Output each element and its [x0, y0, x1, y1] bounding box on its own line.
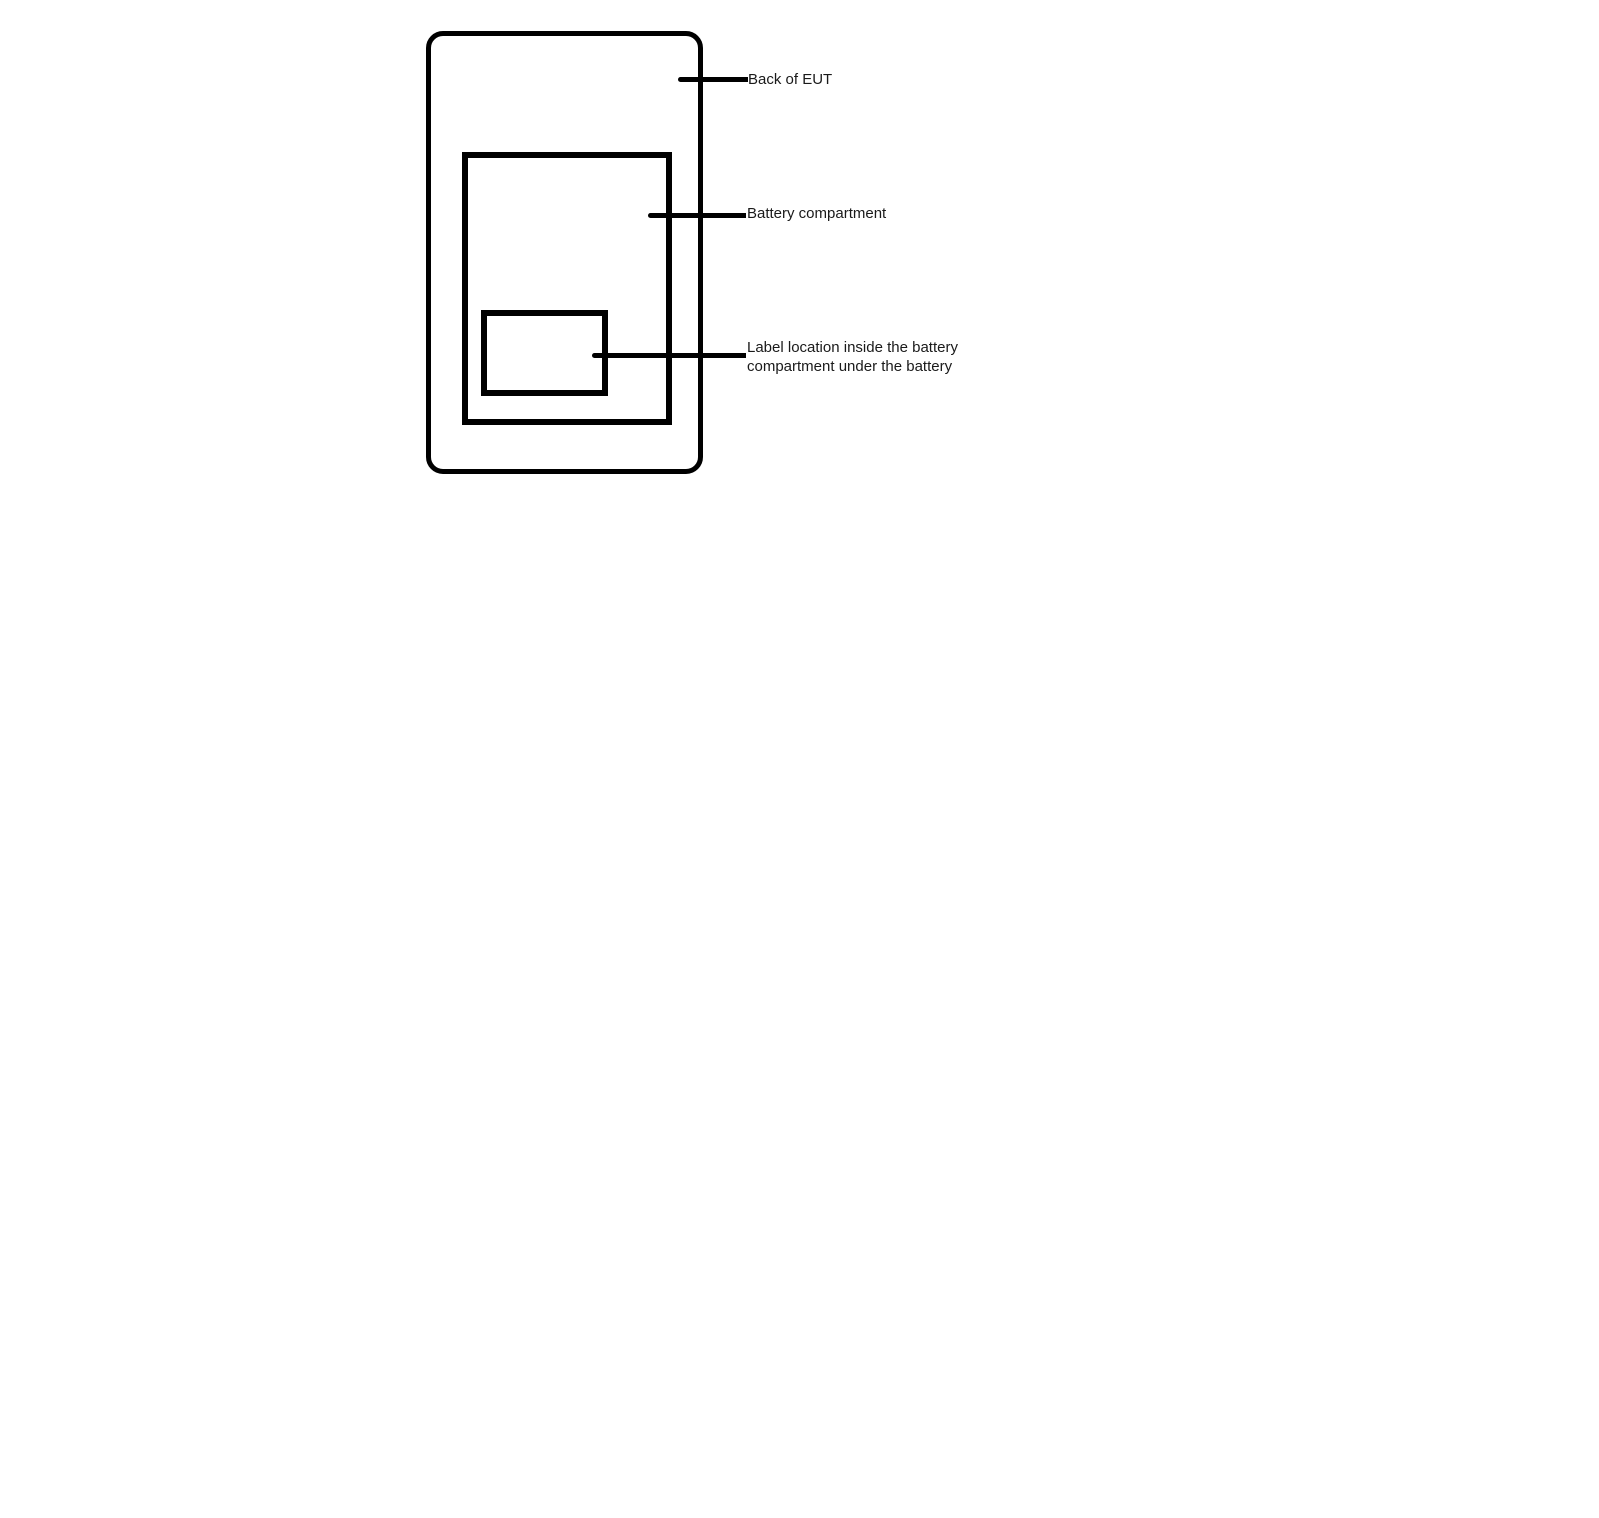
back-of-eut-label: Back of EUT	[748, 70, 832, 89]
battery-compartment-label: Battery compartment	[747, 204, 886, 223]
callout-line-back-of-eut	[678, 77, 748, 82]
callout-line-label-location	[592, 353, 746, 358]
label-location-label-line2: compartment under the battery	[747, 357, 958, 376]
eut-rear-label-location-diagram: Back of EUT Battery compartment Label lo…	[0, 0, 1599, 1518]
label-location-label-line1: Label location inside the battery	[747, 338, 958, 357]
label-location-label: Label location inside the battery compar…	[747, 338, 958, 376]
callout-line-battery-compartment	[648, 213, 746, 218]
label-location-outline	[481, 310, 608, 396]
